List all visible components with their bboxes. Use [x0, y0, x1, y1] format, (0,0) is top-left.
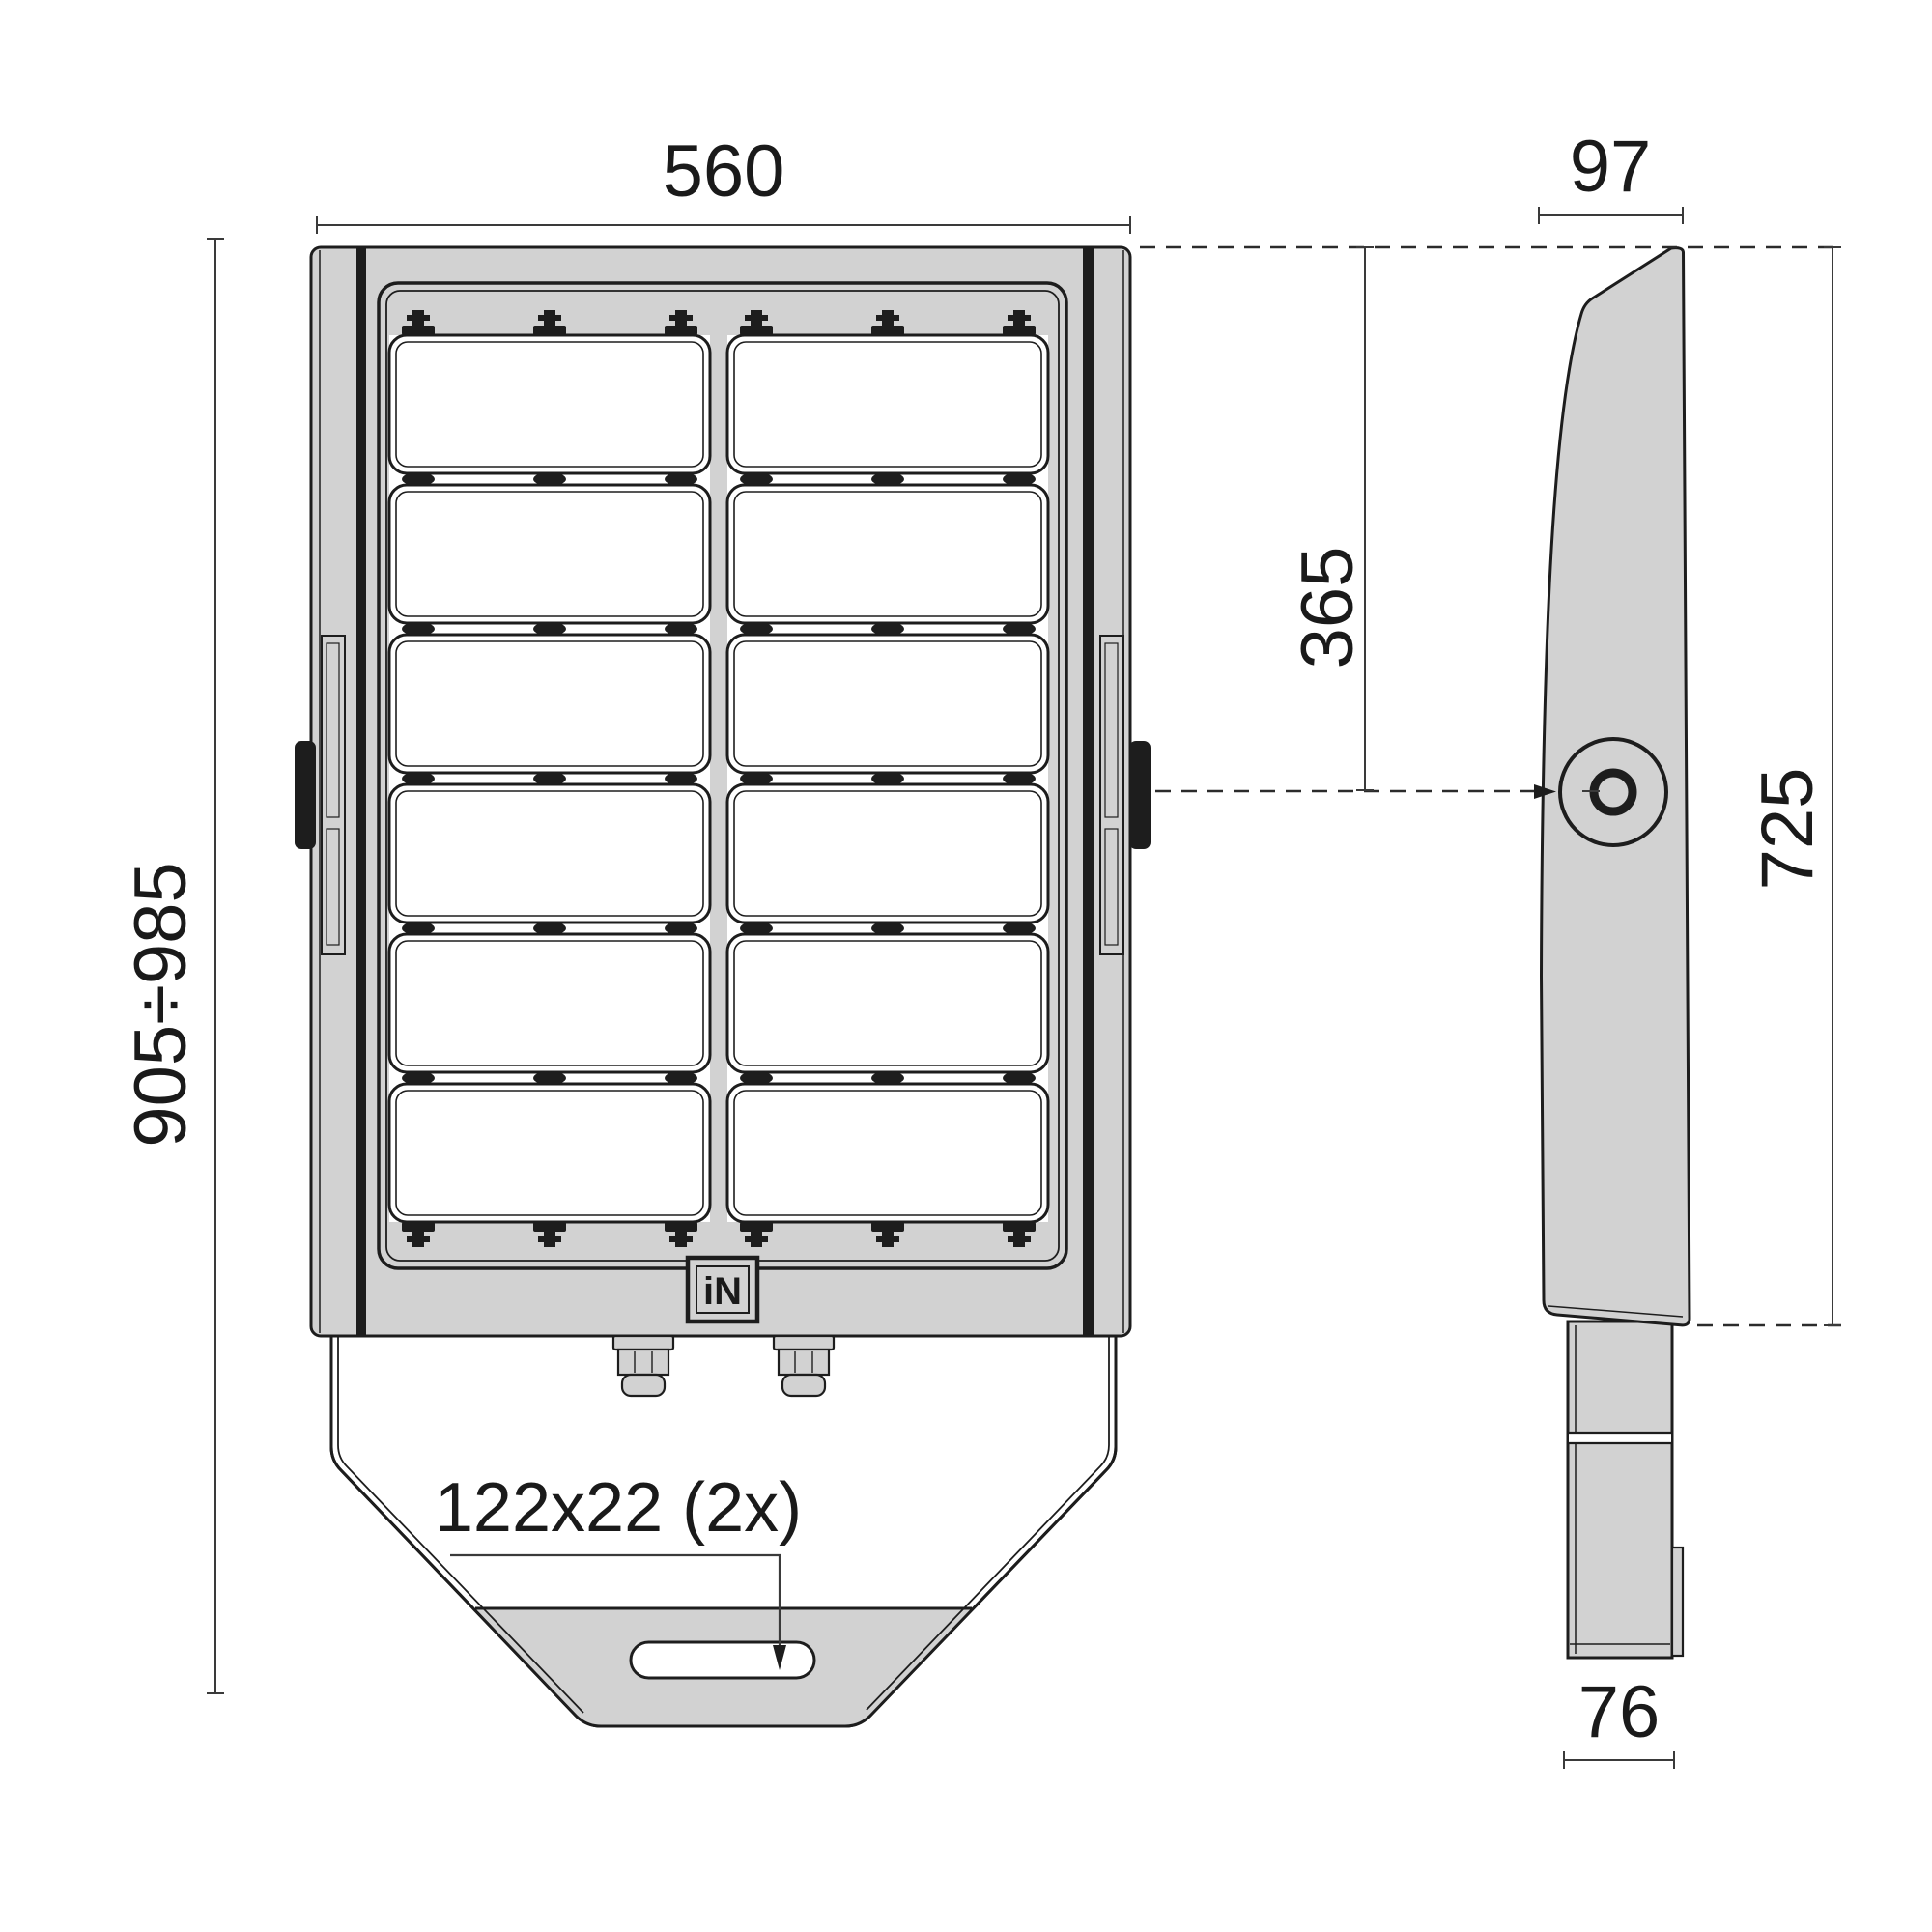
reference-lines [1140, 247, 1841, 1325]
dim-label-side-top-depth: 97 [1570, 126, 1652, 208]
led-panel [389, 784, 710, 923]
led-panel [727, 485, 1048, 623]
side-view [1542, 248, 1690, 1658]
dim-front-width: 560 [317, 130, 1130, 234]
arm-hook [1672, 1548, 1683, 1656]
led-panel [389, 1084, 710, 1222]
right-latch [1100, 636, 1123, 954]
brand-logo: iN [688, 1258, 757, 1321]
dim-label-pivot-height: 725 [1747, 768, 1829, 891]
dim-bracket-depth: 76 [1564, 1671, 1674, 1769]
dim-side-top-depth: 97 [1539, 126, 1683, 224]
led-panel [727, 784, 1048, 923]
left-latch [322, 636, 345, 954]
led-panel [389, 335, 710, 473]
dim-top-to-pivot: 365 [1287, 247, 1374, 790]
dim-label-bracket-depth: 76 [1578, 1671, 1661, 1753]
left-frame-band [356, 248, 366, 1335]
cable-gland [613, 1336, 673, 1396]
pole-arm [1568, 1321, 1683, 1658]
right-latch-clip [1129, 741, 1151, 849]
led-panel [727, 335, 1048, 473]
dim-front-height: 905÷985 [120, 239, 224, 1693]
led-panel [727, 1084, 1048, 1222]
led-panel [727, 635, 1048, 773]
led-panel [727, 934, 1048, 1072]
floodlight-technical-drawing: iN [0, 0, 1932, 1932]
slot-label: 122x22 (2x) [435, 1469, 802, 1547]
cable-gland [774, 1336, 834, 1396]
dim-label-front-height: 905÷985 [120, 862, 202, 1147]
dim-label-top-to-pivot: 365 [1287, 547, 1369, 669]
right-frame-band [1083, 248, 1094, 1335]
dim-label-front-width: 560 [663, 130, 785, 213]
led-panel [389, 635, 710, 773]
led-panel [389, 934, 710, 1072]
mounting-slot [631, 1642, 814, 1678]
logo-text: iN [703, 1270, 742, 1313]
left-latch-clip [295, 741, 316, 849]
led-panel [389, 485, 710, 623]
dim-pivot-height: 725 [1747, 247, 1841, 1325]
